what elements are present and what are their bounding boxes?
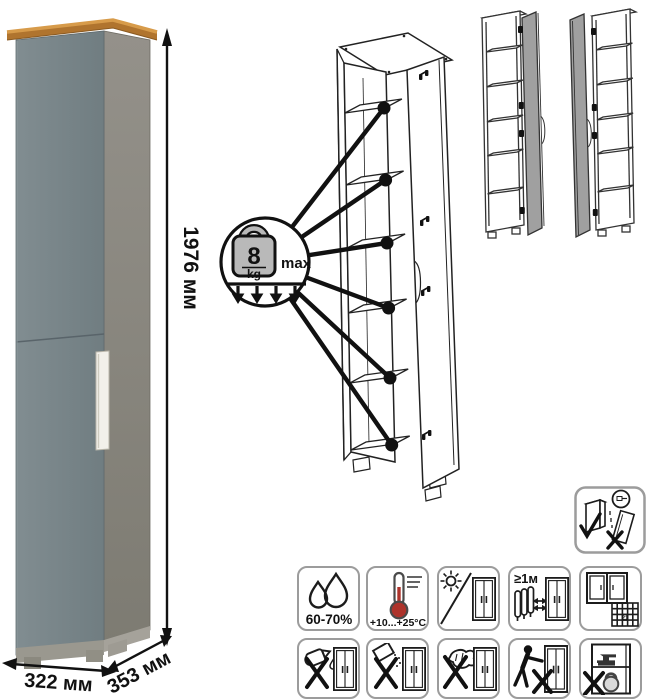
anvil-glyph [597,654,616,665]
svg-text:kg: kg [247,267,261,281]
height-dimension-arrow [162,28,172,646]
no-direct-sunlight-icon [440,570,498,628]
svg-text:≥1м: ≥1м [514,571,538,586]
care-cell-humidity: 60-70% [297,566,360,631]
svg-text:21: 21 [621,615,627,621]
care-cell-no-dragging [508,638,571,699]
svg-text:8: 8 [247,243,260,270]
max-load-callout: 8 kg max [221,218,312,306]
care-cell-no-overloading [579,638,642,699]
humidity-drops-icon: 60-70% [300,570,358,628]
cabinet-body [16,31,150,669]
no-dragging-icon [511,643,569,695]
cabinet-product-render: 1976 мм 322 мм 353 мм [0,0,210,700]
product-sheet: 1976 мм 322 мм 353 мм [0,0,648,700]
care-cell-heat-distance: ≥1м [508,566,571,631]
care-cell-no-sunlight [437,566,500,631]
care-cell-no-scrubbing [437,638,500,699]
keep-distance-from-heat-icon: ≥1м [511,570,569,628]
no-abrasive-powders-icon [369,643,427,695]
kettlebell-weight-icon: 8 kg [233,229,275,282]
kettlebell-glyph [603,673,618,691]
door-handle [96,351,109,450]
height-label: 1976 мм [179,226,202,310]
open-door [407,57,459,488]
temperature-thermometer-icon: +10...+25°C [369,570,427,628]
care-cell-ventilation: 21 [579,566,642,631]
care-cell-no-powders [366,638,429,699]
no-pouring-liquids-icon [300,643,358,695]
ventilate-room-calendar-icon: 21 [582,570,640,628]
svg-text:60-70%: 60-70% [305,612,352,627]
care-cell-temperature: +10...+25°C [366,566,429,631]
door-hinged-left-variant [570,9,636,237]
no-overloading-icon [582,643,640,695]
no-harsh-scrubbing-icon [440,643,498,695]
door-hinged-right-variant [482,11,545,238]
svg-text:+10...+25°C: +10...+25°C [369,617,426,628]
width-label: 322 мм [23,670,93,697]
fix-to-wall-icon [574,486,646,554]
door-variant-drawings [474,4,648,256]
assembly-drawing: 8 kg max [213,8,475,508]
max-label: max [281,255,312,272]
person-figure [515,645,542,686]
care-cell-no-liquids [297,638,360,699]
